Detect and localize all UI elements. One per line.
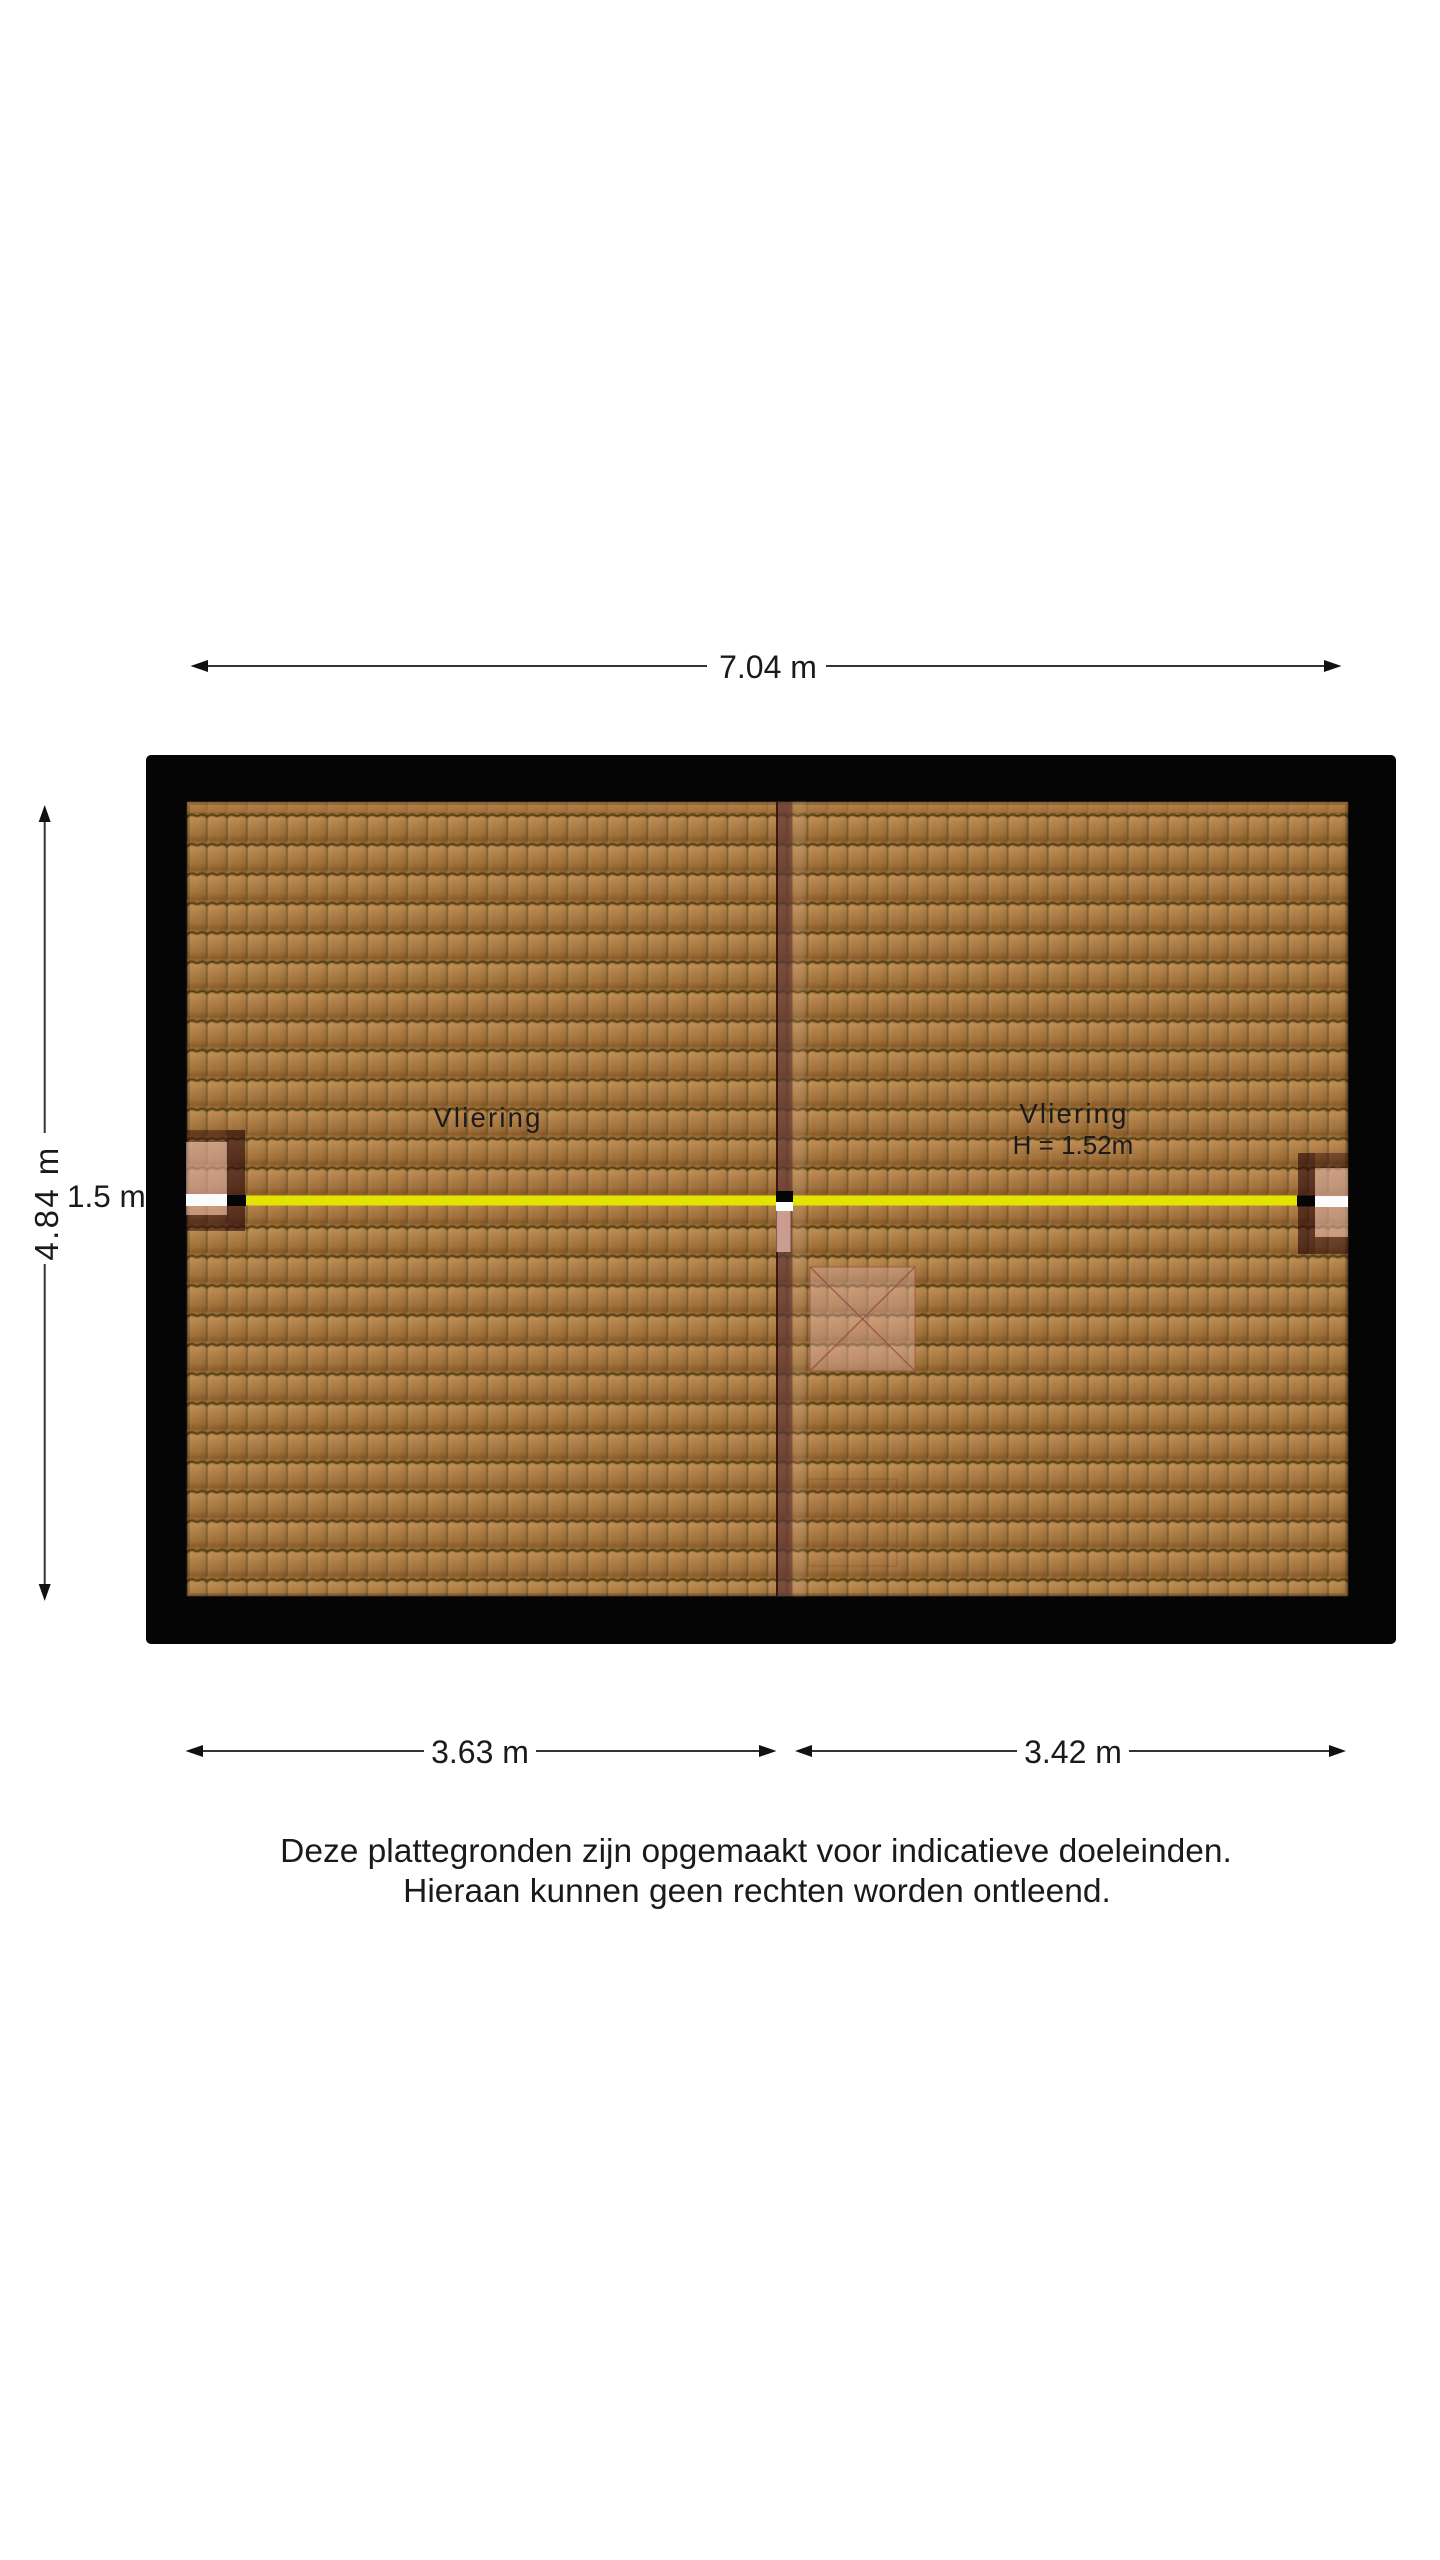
svg-text:7.04 m: 7.04 m: [719, 649, 817, 685]
svg-text:3.42 m: 3.42 m: [1024, 1734, 1122, 1770]
svg-text:1.5 m: 1.5 m: [67, 1178, 146, 1214]
svg-text:Hieraan kunnen geen rechten wo: Hieraan kunnen geen rechten worden ontle…: [403, 1873, 1111, 1910]
svg-text:H = 1.52m: H = 1.52m: [1013, 1130, 1134, 1160]
svg-text:Vliering: Vliering: [433, 1102, 542, 1133]
svg-text:Vliering: Vliering: [1019, 1098, 1128, 1129]
svg-text:Deze plattegronden zijn opgema: Deze plattegronden zijn opgemaakt voor i…: [280, 1833, 1232, 1870]
svg-text:4.84 m: 4.84 m: [28, 1145, 65, 1260]
svg-text:3.63 m: 3.63 m: [431, 1734, 529, 1770]
